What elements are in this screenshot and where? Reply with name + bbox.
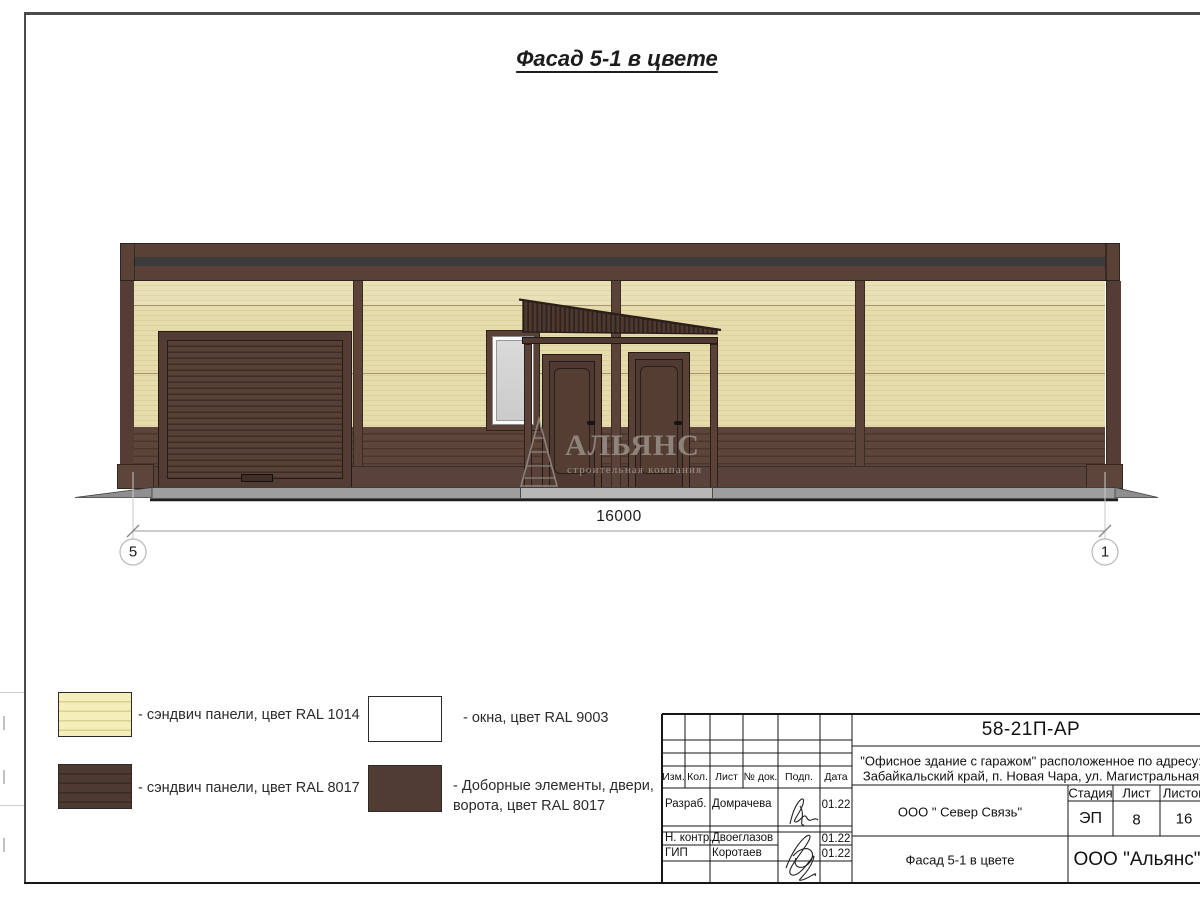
dimension-label: 16000 [133,508,1105,526]
signature-gip [786,835,816,880]
axis-marker-5: 5 [129,544,137,561]
drawing-sheet: Фасад 5-1 в цвете [0,0,1200,900]
watermark-tagline: строительная компания [567,464,702,476]
titleblock-lines [662,714,1200,883]
signature-razrab [790,799,818,825]
ramp-right [1115,488,1158,498]
watermark-logo-icon [521,419,557,486]
watermark-name: АЛЬЯНС [565,429,700,463]
axis-marker-1: 1 [1101,544,1109,561]
ramp-left [75,488,152,498]
